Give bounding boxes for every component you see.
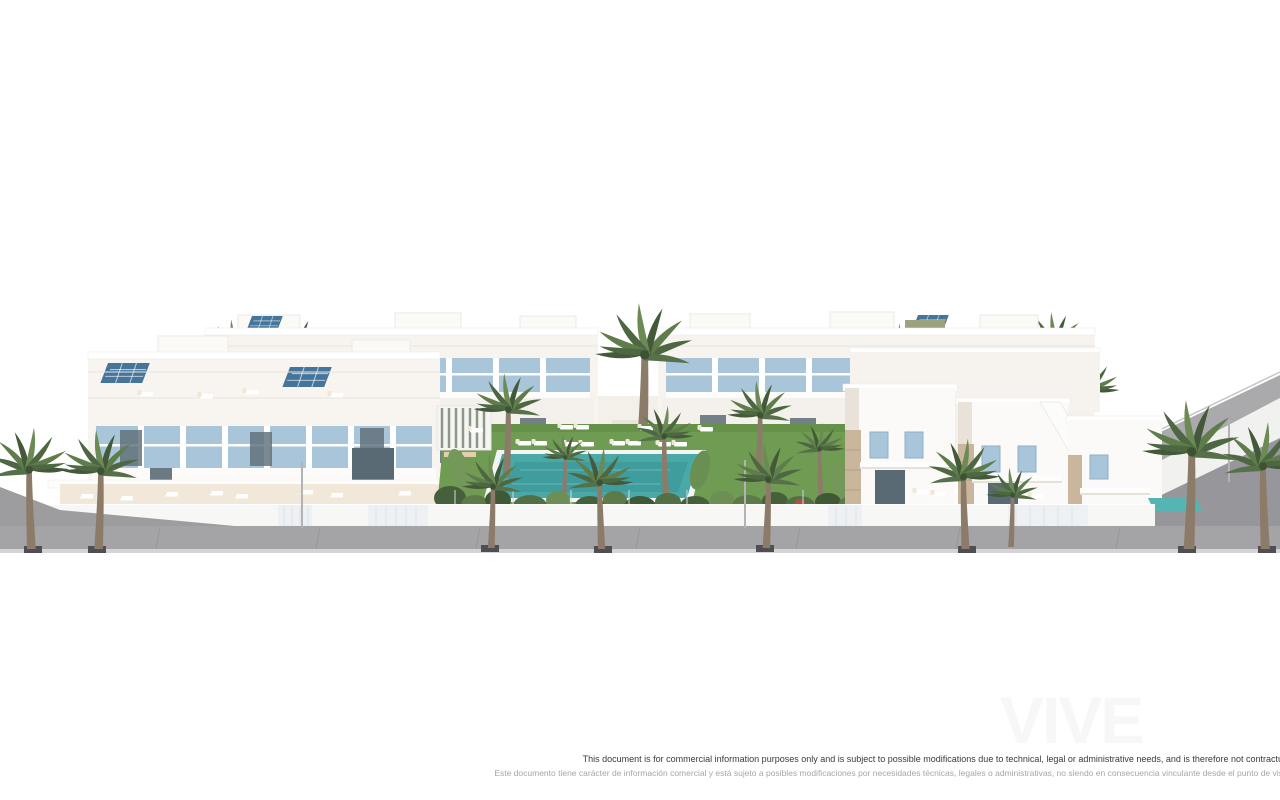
render-page: VIVE	[0, 0, 1280, 800]
legal-disclaimer: This document is for commercial informat…	[0, 753, 1280, 779]
disclaimer-line-en: This document is for commercial informat…	[0, 753, 1280, 765]
disclaimer-line-es: Este documento tiene carácter de informa…	[0, 767, 1280, 779]
render-scene	[0, 0, 1280, 800]
villa-a	[843, 384, 957, 506]
